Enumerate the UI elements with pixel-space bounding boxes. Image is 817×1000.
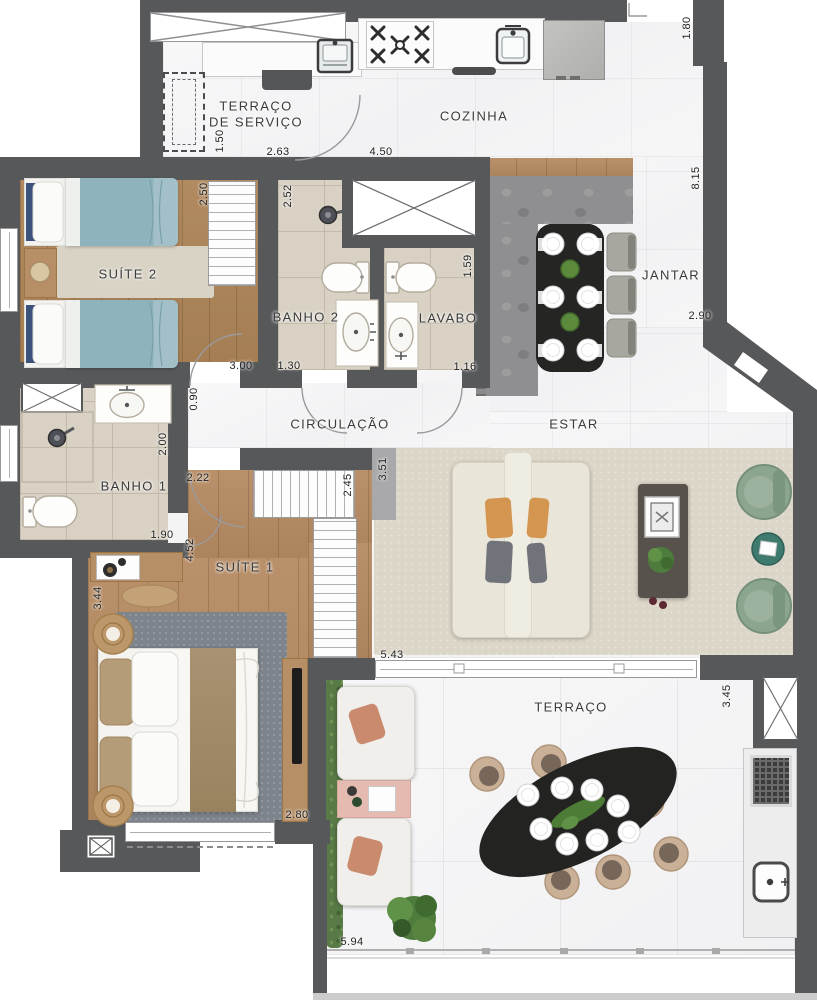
closet-suite1-top [253, 470, 355, 518]
tray-terrace [368, 786, 396, 812]
stone-feature-wall [486, 176, 633, 224]
label-suite1: SUÍTE 1 [216, 560, 275, 575]
dim-1-59: 1.59 [462, 254, 474, 277]
desk-device [96, 555, 140, 580]
label-terraco-servico-1: TERRAÇO [219, 99, 292, 114]
fridge [543, 20, 605, 80]
cushion-gray-1 [485, 540, 513, 583]
washer-front [262, 70, 312, 90]
floor-banho2 [278, 180, 370, 370]
wall-shaft2-left [753, 677, 763, 747]
wall-suite1-terrace [308, 658, 326, 830]
nightstand-suite2 [24, 248, 57, 298]
shaft-kitchen [352, 180, 476, 236]
floor-banho1 [20, 388, 168, 540]
dim-1-16: 1.16 [453, 361, 476, 373]
bed-suite2-a-duvet [66, 178, 178, 246]
label-cozinha: COZINHA [440, 109, 508, 124]
dim-3-45: 3.45 [721, 684, 733, 707]
dim-3-51: 3.51 [377, 457, 389, 480]
window-service-top [150, 12, 346, 42]
cushion-orange-1 [485, 497, 514, 539]
window-suite1-bottom [125, 822, 275, 842]
future-appliance-dashed [163, 72, 205, 152]
wall-kitchen-right-b [703, 62, 727, 328]
dim-4-52: 4.52 [184, 538, 196, 561]
dim-2-63: 2.63 [266, 146, 289, 158]
wall-lavabo-right [474, 163, 490, 388]
label-lavabo: LAVABO [419, 311, 478, 326]
cushion-gray-2 [526, 542, 547, 583]
wardrobe-suite2 [208, 181, 256, 286]
dim-1-90: 1.90 [150, 529, 173, 541]
dim-2-22: 2.22 [186, 472, 209, 484]
wall-suite2-divider [258, 180, 278, 388]
wall-baths-bottom-b [347, 370, 417, 388]
window-suite1-dashed-sill [127, 846, 273, 848]
dim-3-44: 3.44 [92, 586, 104, 609]
wall-terrace-top-left [308, 658, 375, 680]
label-banho2: BANHO 2 [273, 310, 340, 325]
dim-1-80: 1.80 [681, 16, 693, 39]
page-edge-strip [313, 993, 817, 1000]
wall-terrace-right [795, 660, 817, 995]
bed-suite2-b-duvet [66, 300, 178, 368]
stone-feature-wall-vertical [486, 224, 538, 396]
wall-baths-bottom-a [258, 370, 302, 388]
sliding-door-estar-terrace [375, 660, 697, 678]
wall-service-left [140, 22, 163, 157]
dim-2-90: 2.90 [688, 310, 711, 322]
door-opening-diagonal [734, 352, 768, 383]
window-banho1-left [0, 425, 18, 482]
dim-2-80: 2.80 [285, 809, 308, 821]
stone-wall-wood-cap [486, 158, 633, 176]
wall-terrace-left [313, 828, 327, 995]
wall-shaft-left [342, 180, 352, 244]
floor-lavabo [384, 248, 474, 370]
dim-2-45: 2.45 [342, 473, 354, 496]
label-circulacao: CIRCULAÇÃO [290, 417, 389, 432]
exterior-mask [727, 0, 817, 392]
cooktop-base [366, 21, 434, 68]
wall-circ-south [240, 448, 372, 470]
label-terraco: TERRAÇO [534, 700, 607, 715]
wall-suite1-left [72, 558, 88, 830]
grill [750, 755, 792, 807]
wall-left-outer [0, 157, 20, 558]
dim-8-15: 8.15 [690, 166, 702, 189]
wall-banho2-lavabo [370, 248, 384, 388]
dim-3-00: 3.00 [229, 360, 252, 372]
dim-2-52: 2.52 [282, 184, 294, 207]
dim-5-43: 5.43 [380, 649, 403, 661]
label-jantar: JANTAR [642, 268, 700, 283]
label-terraco-servico-2: DE SERVIÇO [209, 115, 303, 130]
label-estar: ESTAR [549, 417, 598, 432]
window-suite2-left [0, 228, 18, 312]
floor-circulacao [188, 383, 490, 448]
bed-suite2-b [24, 300, 70, 368]
cushion-orange-2 [526, 497, 549, 539]
dim-5-94: 5.94 [340, 936, 363, 948]
dim-1-50: 1.50 [214, 129, 226, 152]
dim-2-50: 2.50 [198, 182, 210, 205]
bed-suite2-a [24, 178, 70, 246]
wall-estar-right [793, 390, 817, 660]
floor-plan: TERRAÇO DE SERVIÇO COZINHA SUÍTE 2 BANHO… [0, 0, 817, 1000]
wall-kitchen-right-a [693, 0, 724, 66]
tv-board-suite1 [282, 658, 308, 822]
bed-suite1-throw [190, 648, 236, 812]
wall-banho1-right [168, 388, 188, 513]
oven-handle [452, 67, 496, 75]
dim-4-50: 4.50 [369, 146, 392, 158]
dim-0-90: 0.90 [188, 387, 200, 410]
dim-1-30: 1.30 [277, 360, 300, 372]
wall-shaft-bottom [342, 236, 476, 248]
label-banho1: BANHO 1 [101, 479, 168, 494]
dim-2-00: 2.00 [157, 432, 169, 455]
label-suite2: SUÍTE 2 [99, 267, 158, 282]
wardrobe-suite1 [313, 518, 357, 658]
wall-main-top [0, 157, 490, 180]
coffee-table-estar [638, 484, 688, 598]
